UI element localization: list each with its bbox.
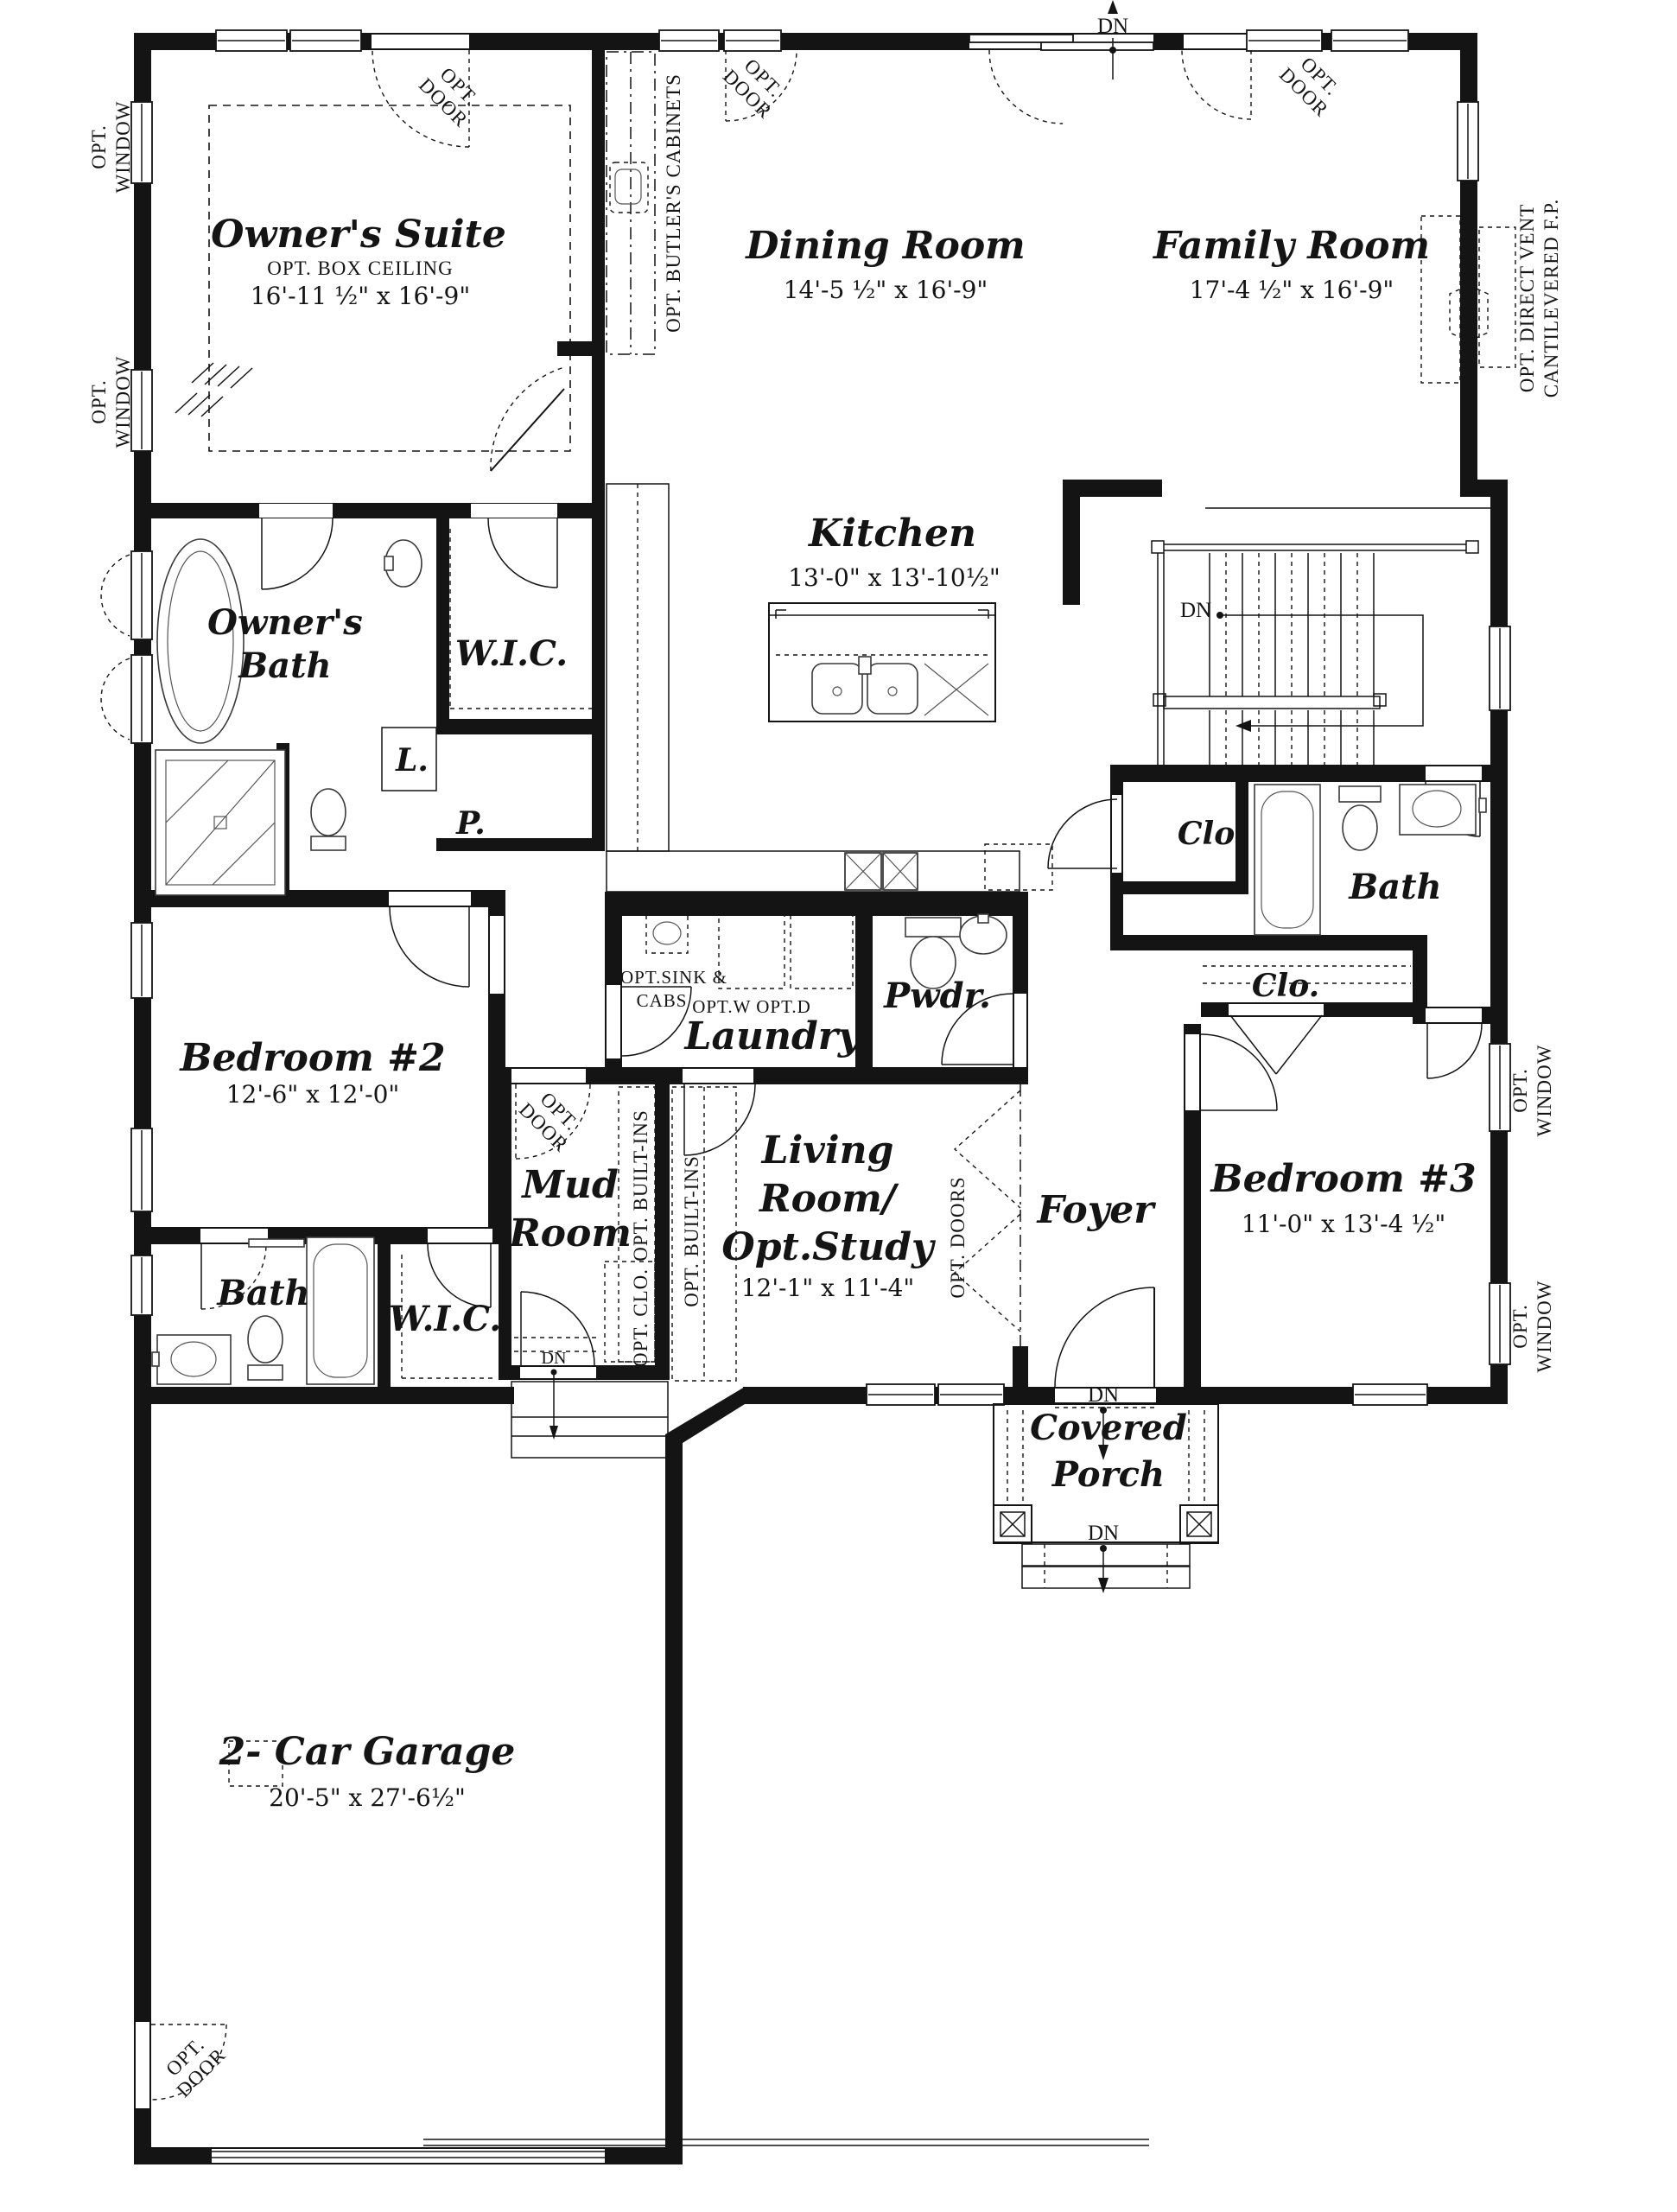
- dn-label-foyer: DN: [1088, 1383, 1119, 1407]
- window-icon: [1490, 1044, 1510, 1131]
- note-box-ceiling: OPT. BOX CEILING: [267, 257, 454, 279]
- kitchen-island: [769, 603, 995, 721]
- room-dims-family: 17'-4 ½" x 16'-9": [1190, 276, 1394, 304]
- room-dims-living: 12'-1" x 11'-4": [741, 1274, 915, 1302]
- svg-text:WINDOW: WINDOW: [1534, 1045, 1555, 1137]
- room-label-closet-bed3: Clo.: [1252, 968, 1319, 1004]
- annotation-opt-direct-vent-fp: OPT. DIRECT VENT CANTILEVERED F.P.: [1516, 199, 1562, 397]
- annotation-opt-clo: OPT. CLO.: [630, 1268, 651, 1367]
- room-label-closet-stair: Clo.: [1178, 816, 1245, 852]
- casement-arc: [101, 555, 130, 636]
- towel-bar: [249, 1239, 304, 1247]
- bath3-toilet: [1339, 786, 1381, 850]
- window-icon: [724, 30, 781, 51]
- room-label-garage: 2- Car Garage: [219, 1730, 516, 1774]
- dryer-outline: [791, 914, 853, 988]
- room-label-bath2: Bath: [216, 1273, 309, 1313]
- room-label-bedroom3: Bedroom #3: [1209, 1157, 1476, 1201]
- annotation-opt-builtins: OPT. BUILT-INS: [681, 1155, 702, 1306]
- owners-sink: [384, 540, 422, 587]
- room-label-powder: Pwdr.: [883, 976, 991, 1016]
- room-label-mud-1: Mud: [520, 1163, 618, 1207]
- room-dims-kitchen: 13'-0" x 13'-10½": [788, 563, 1000, 592]
- svg-text:WINDOW: WINDOW: [1534, 1281, 1555, 1373]
- laundry-sink: [646, 914, 688, 953]
- island-sink: [812, 664, 862, 714]
- window-icon: [1490, 1283, 1510, 1364]
- svg-text:OPT. BUTLER'S CABINETS: OPT. BUTLER'S CABINETS: [663, 73, 684, 333]
- stair-treads-upper: [1210, 553, 1374, 696]
- room-label-mud-2: Room: [507, 1211, 632, 1255]
- room-label-living-1: Living: [760, 1128, 894, 1173]
- svg-text:WINDOW: WINDOW: [112, 101, 134, 194]
- porch-column: [994, 1505, 1032, 1543]
- annotation-opt-window: OPT. WINDOW: [88, 356, 134, 448]
- bath2-toilet: [248, 1316, 283, 1380]
- window-icon: [938, 1384, 1004, 1405]
- svg-text:OPT. CLO.: OPT. CLO.: [630, 1268, 651, 1367]
- room-label-owners-bath-1: Owner's: [207, 602, 363, 643]
- room-dims-bedroom3: 11'-0" x 13'-4 ½": [1242, 1210, 1446, 1238]
- window-icon: [131, 923, 152, 998]
- room-label-laundry: Laundry: [683, 1014, 863, 1058]
- annotation-opt-door: OPT. DOOR: [515, 1083, 588, 1156]
- dn-label-patio: DN: [1097, 15, 1128, 38]
- window-icon: [290, 30, 361, 51]
- annotation-opt-doors: OPT. DOORS: [947, 1176, 969, 1298]
- room-label-living-3: Opt.Study: [721, 1225, 937, 1269]
- island-sink: [867, 664, 918, 714]
- annotation-opt-door: OPT. DOOR: [156, 2028, 230, 2101]
- room-label-family: Family Room: [1152, 224, 1430, 268]
- room-dims-garage: 20'-5" x 27'-6½": [269, 1783, 466, 1812]
- annotation-opt-window: OPT. WINDOW: [88, 101, 134, 194]
- window-icon: [131, 370, 152, 451]
- room-label-bedroom2: Bedroom #2: [178, 1036, 445, 1080]
- room-dims-bedroom2: 12'-6" x 12'-0": [226, 1080, 400, 1109]
- annotation-opt-butlers-cabinets: OPT. BUTLER'S CABINETS: [663, 73, 684, 333]
- room-label-porch-2: Porch: [1051, 1454, 1165, 1495]
- powder-sink: [960, 914, 1007, 954]
- porch-column: [1180, 1505, 1218, 1543]
- window-icon: [131, 655, 152, 743]
- annotation-opt-window: OPT. WINDOW: [1509, 1045, 1555, 1137]
- labels: Owner's Suite OPT. BOX CEILING 16'-11 ½"…: [88, 15, 1562, 2101]
- svg-text:CANTILEVERED F.P.: CANTILEVERED F.P.: [1540, 199, 1562, 397]
- window-icon: [659, 30, 719, 51]
- room-label-porch-1: Covered: [1030, 1408, 1187, 1448]
- room-label-foyer: Foyer: [1036, 1188, 1157, 1232]
- floor-plan-drawing: Owner's Suite OPT. BOX CEILING 16'-11 ½"…: [0, 0, 1677, 2212]
- dn-label-mud: DN: [542, 1349, 567, 1368]
- stair-arrow: [1236, 720, 1251, 732]
- window-icon: [1331, 30, 1408, 51]
- room-label-kitchen: Kitchen: [807, 512, 976, 556]
- window-icon: [1353, 1384, 1427, 1405]
- svg-text:OPT.: OPT.: [1509, 1304, 1531, 1349]
- svg-text:OPT. DOORS: OPT. DOORS: [947, 1176, 969, 1298]
- dn-label-porch: DN: [1088, 1522, 1119, 1545]
- svg-text:OPT. BUILT-INS: OPT. BUILT-INS: [630, 1109, 651, 1261]
- room-label-owners-suite: Owner's Suite: [211, 213, 506, 257]
- window-icon: [867, 1384, 935, 1405]
- wall-break-hatch: [175, 363, 252, 416]
- window-icon: [131, 1255, 152, 1315]
- window-icon: [1458, 102, 1478, 181]
- svg-text:OPT.: OPT.: [88, 124, 110, 169]
- annotation-opt-door: OPT. DOOR: [1275, 48, 1349, 121]
- room-label-owners-bath-2: Bath: [238, 645, 331, 686]
- stairs: [1152, 508, 1492, 780]
- window-icon: [1490, 626, 1510, 710]
- bath3-tub: [1255, 785, 1320, 935]
- window-icon: [216, 30, 287, 51]
- svg-text:OPT.: OPT.: [1509, 1068, 1531, 1113]
- room-dims-owners-suite: 16'-11 ½" x 16'-9": [251, 282, 470, 310]
- room-label-living-2: Room/: [758, 1177, 899, 1221]
- room-dims-dining: 14'-5 ½" x 16'-9": [784, 276, 988, 304]
- dn-label-stairs: DN: [1180, 599, 1211, 622]
- note-opt-sink-2: CABS: [637, 990, 688, 1011]
- room-label-linen: L.: [395, 742, 429, 779]
- window-icon: [131, 1128, 152, 1211]
- window-icon: [1247, 30, 1322, 51]
- note-opt-sink-1: OPT.SINK &: [620, 967, 727, 988]
- annotation-opt-door: OPT. DOOR: [719, 49, 792, 123]
- annotation-opt-window: OPT. WINDOW: [1509, 1281, 1555, 1373]
- room-label-wic-owners: W.I.C.: [455, 633, 568, 674]
- annotation-opt-door: OPT. DOOR: [415, 58, 488, 131]
- owners-shower: [156, 750, 285, 895]
- note-opt-wd: OPT.W OPT.D: [692, 996, 811, 1017]
- annotation-opt-builtins: OPT. BUILT-INS: [630, 1109, 651, 1261]
- room-label-pantry: P.: [455, 805, 486, 842]
- bath2-vanity: [152, 1335, 231, 1384]
- driveway-apron-line: [423, 2139, 1149, 2145]
- svg-text:WINDOW: WINDOW: [112, 356, 134, 448]
- svg-text:OPT. BUILT-INS: OPT. BUILT-INS: [681, 1155, 702, 1306]
- owners-wic-rods: [450, 529, 594, 709]
- window-icon: [131, 102, 152, 183]
- svg-text:OPT. DIRECT VENT: OPT. DIRECT VENT: [1516, 204, 1538, 393]
- room-label-wic2: W.I.C.: [389, 1299, 501, 1339]
- floor-plan-page: Owner's Suite OPT. BOX CEILING 16'-11 ½"…: [0, 0, 1677, 2212]
- washer-outline: [719, 909, 785, 988]
- bath2-tub: [307, 1237, 374, 1384]
- svg-text:OPT.: OPT.: [88, 379, 110, 424]
- room-label-bath3: Bath: [1348, 867, 1441, 907]
- room-label-dining: Dining Room: [744, 224, 1025, 268]
- owners-toilet: [311, 789, 346, 850]
- casement-arc: [101, 658, 130, 740]
- bath3-vanity: [1400, 785, 1486, 835]
- window-icon: [131, 551, 152, 639]
